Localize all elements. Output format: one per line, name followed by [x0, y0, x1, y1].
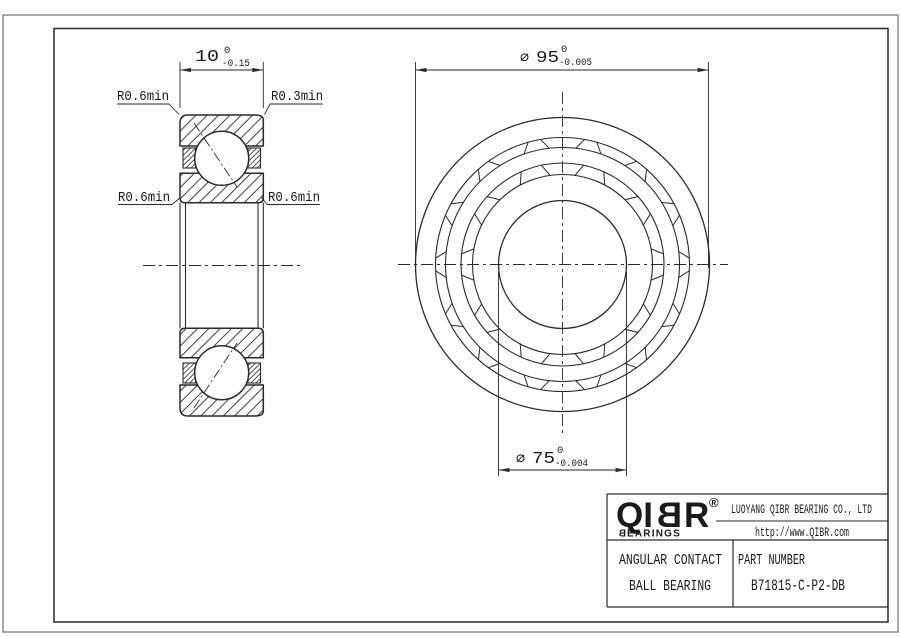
part-number-value: B71815-C-P2-DB — [751, 577, 845, 595]
logo-sub-rest: EARINGS — [627, 529, 681, 540]
cage-pocket-divider — [524, 375, 528, 387]
cage-pocket-divider — [540, 381, 549, 390]
radius-label-top-right: R0.3min — [271, 89, 323, 105]
ball-top — [195, 131, 249, 185]
cage-pocket-divider — [576, 139, 585, 148]
callout-mid-right: R0.6min — [262, 190, 321, 206]
dim-outer-tol-upper: 0 — [561, 44, 567, 56]
cage-pocket-divider — [541, 354, 550, 364]
front-view: ∅ 95 0 -0.005 ∅ 75 0 -0.004 — [398, 44, 728, 476]
cage-pocket-divider — [645, 347, 646, 359]
dim-width-tol-upper: 0 — [224, 45, 230, 57]
cage-pocket-divider — [673, 215, 680, 226]
cage-pocket-divider — [625, 197, 638, 200]
cage-pocket-divider — [445, 215, 452, 226]
dimension-bore-text: ∅ 75 0 -0.004 — [516, 445, 588, 470]
cage-pocket-divider — [540, 139, 549, 148]
cage-pocket-divider — [645, 169, 646, 181]
logo-sub-mirrored-b: B — [619, 529, 626, 540]
dim-bore-tol-upper: 0 — [557, 445, 563, 457]
cage-pocket-divider — [604, 172, 605, 185]
cage-pocket-divider — [462, 275, 474, 280]
cage-pocket-divider — [478, 347, 479, 359]
cage-pocket-divider — [643, 304, 650, 315]
cage-pocket-divider — [520, 172, 521, 185]
drawing-sheet: 10 0 -0.15 R0.6min R0.3min R0.6min R0 — [0, 0, 900, 636]
radius-label-mid-left: R0.6min — [118, 190, 170, 206]
product-type-line2: BALL BEARING — [629, 579, 711, 595]
cage-pocket-divider — [643, 214, 650, 225]
qibr-logo: QI B R ® B EARINGS — [616, 495, 719, 540]
cage-pocket-divider — [451, 202, 463, 203]
cage-pocket-divider — [625, 329, 638, 332]
section-bottom-half — [180, 328, 263, 416]
title-block: QI B R ® B EARINGS LUOYANG QIBR BEARING … — [607, 494, 888, 607]
cage-pocket-divider — [662, 325, 674, 326]
dimension-outer-diameter — [416, 62, 709, 268]
cage-pocket-divider — [679, 271, 690, 278]
cage-pocket-divider — [673, 303, 680, 314]
cage-pocket-divider — [575, 354, 584, 364]
cage-pocket-divider — [524, 142, 528, 154]
section-top-half — [180, 115, 263, 203]
cage-section-left-bottom — [183, 363, 196, 383]
logo-right: R — [684, 496, 709, 535]
cage-pocket-divider — [597, 375, 601, 387]
cage-pocket-divider — [662, 202, 674, 203]
cage-section-left-top — [183, 148, 196, 168]
front-view-centerlines — [398, 92, 728, 437]
cage-pocket-divider — [520, 344, 521, 357]
dim-outer-symbol: ∅ — [520, 50, 529, 67]
ball-bottom — [195, 346, 249, 400]
callout-top-left: R0.6min — [117, 89, 179, 115]
cage-pocket-divider — [575, 165, 584, 175]
callout-mid-left: R0.6min — [118, 190, 181, 206]
dim-bore-value: 75 — [532, 449, 555, 468]
dim-outer-tol-lower: -0.005 — [559, 57, 592, 69]
cage-pocket-divider — [436, 252, 447, 259]
dimension-width-text: 10 0 -0.15 — [195, 45, 250, 70]
cage-pocket-divider — [604, 344, 605, 357]
dimension-outer-text: ∅ 95 0 -0.005 — [520, 44, 592, 69]
cage-pocket-divider — [478, 169, 479, 181]
callout-top-right: R0.3min — [265, 89, 324, 115]
section-view: 10 0 -0.15 R0.6min R0.3min R0.6min R0 — [117, 45, 323, 416]
radius-label-mid-right: R0.6min — [268, 190, 320, 206]
product-type-line1: ANGULAR CONTACT — [619, 553, 722, 569]
dim-outer-value: 95 — [536, 48, 559, 67]
radius-label-top-left: R0.6min — [117, 89, 169, 105]
cage-pocket-divider — [475, 304, 482, 315]
cage-section-right-top — [248, 148, 261, 168]
cage-pocket-divider — [462, 249, 474, 254]
dim-width-tol-lower: -0.15 — [222, 58, 250, 70]
cage-section-right-bottom — [248, 363, 261, 383]
cage-pocket-divider — [488, 161, 500, 165]
dim-bore-symbol: ∅ — [516, 451, 525, 468]
cage-pocket-divider — [436, 271, 447, 278]
cage-pocket-divider — [576, 381, 585, 390]
cage-pocket-divider — [651, 249, 663, 254]
cage-pocket-divider — [625, 161, 637, 165]
bearing-drawing-canvas: 10 0 -0.15 R0.6min R0.3min R0.6min R0 — [0, 0, 900, 636]
cage-pocket-divider — [445, 303, 452, 314]
logo-registered-mark: ® — [709, 495, 719, 510]
part-number-label: PART NUMBER — [738, 553, 805, 569]
cage-pocket-divider — [651, 275, 663, 280]
cage-pocket-divider — [487, 329, 500, 332]
company-website: http://www.QIBR.com — [755, 525, 849, 540]
cage-pocket-divider — [475, 214, 482, 225]
cage-pocket-divider — [679, 252, 690, 259]
cage-pocket-divider — [487, 197, 500, 200]
company-name: LUOYANG QIBR BEARING CO., LTD — [731, 502, 872, 517]
dim-bore-tol-lower: -0.004 — [555, 458, 588, 470]
cage-pocket-divider — [451, 325, 463, 326]
dim-width-value: 10 — [195, 47, 219, 66]
cage-pocket-divider — [597, 142, 601, 154]
cage-pocket-divider — [541, 165, 550, 175]
